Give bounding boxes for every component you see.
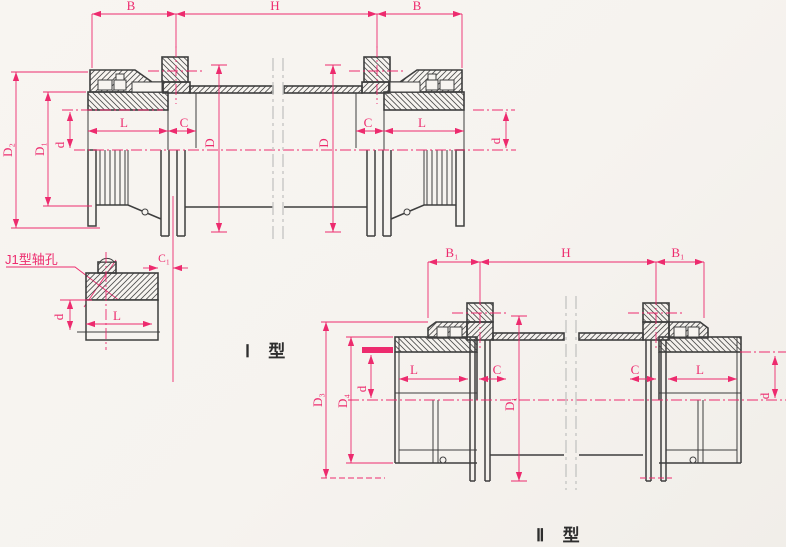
dim-label-D2: D₂ <box>0 143 15 157</box>
type1-title: Ⅰ 型 <box>245 341 292 361</box>
type1-external-lower-half <box>88 150 464 236</box>
type1-dimensions: B H B D₂ D₁ d L C D D C L d <box>0 0 506 382</box>
dim-label-C-left-2: C <box>493 362 502 377</box>
hub-rim-right <box>384 92 464 110</box>
dim-label-d-left-2: d <box>354 385 369 392</box>
hub-rim-right-2 <box>659 337 741 352</box>
scanned-coupling-drawing-page: B H B D₂ D₁ d L C D D C L d <box>0 0 786 547</box>
dim-label-D3: D₃ <box>310 393 325 407</box>
dim-label-C1: C₁ <box>158 253 170 265</box>
middle-tube-right <box>284 86 362 93</box>
dim-label-B1-left: B₁ <box>445 245 458 260</box>
lube-hole-right-2 <box>690 457 696 463</box>
type1-section-upper-half <box>88 57 464 150</box>
coupling-drawing-canvas: B H B D₂ D₁ d L C D D C L d <box>0 0 786 547</box>
dim-label-H: H <box>270 0 279 13</box>
hub-rim-left <box>88 92 168 110</box>
j1-boss-cap <box>100 258 114 262</box>
lube-hole-right <box>404 209 410 215</box>
type2-external-lower-half <box>395 400 741 463</box>
dim-label-D-left: D <box>202 138 217 147</box>
type1-shaft-hole-detail: J1型轴孔 C₁ d L <box>5 252 188 350</box>
dim-label-L-left-2: L <box>410 362 418 377</box>
dim-label-d-right-2: d <box>757 392 772 399</box>
type2-title: Ⅱ 型 <box>536 525 587 545</box>
highlight-marker-bar <box>362 347 393 353</box>
dim-label-D1-2: D₁ <box>502 397 517 411</box>
dim-label-L-left: L <box>120 115 128 130</box>
dim-label-H-2: H <box>561 245 570 260</box>
bolt-left <box>162 57 188 82</box>
type2-dimensions: B₁ H B₁ D₃ D₄ d L C D₁ C L d <box>310 245 775 481</box>
dim-label-B-left: B <box>127 0 136 13</box>
middle-tube-left <box>190 86 273 93</box>
dim-label-L-right-2: L <box>696 362 704 377</box>
middle-tube-right-2 <box>579 333 643 340</box>
hub-rim-left-2 <box>395 337 477 352</box>
middle-tube-left-2 <box>493 333 564 340</box>
dim-label-C-right: C <box>364 115 373 130</box>
j1-hub-rim <box>86 273 158 300</box>
dim-label-C-left: C <box>180 115 189 130</box>
dim-label-D-right: D <box>316 138 331 147</box>
seal-rings <box>98 74 454 92</box>
lube-hole-left-2 <box>440 457 446 463</box>
dim-label-B-right: B <box>413 0 422 13</box>
dim-label-hub-L: L <box>113 308 121 323</box>
type2-drawing: B₁ H B₁ D₃ D₄ d L C D₁ C L d Ⅱ 型 <box>310 245 786 545</box>
lube-hole-left <box>142 209 148 215</box>
dim-label-hub-d: d <box>51 313 66 320</box>
dim-label-B1-right: B₁ <box>671 245 684 260</box>
dim-label-D1: D₁ <box>32 142 47 156</box>
j1-boss <box>98 262 116 273</box>
dim-label-d-left: d <box>52 141 67 148</box>
dim-label-D4: D₄ <box>335 394 350 408</box>
dim-label-L-right: L <box>418 115 426 130</box>
dim-label-d-right: d <box>488 137 503 144</box>
j1-shaft-hole-callout: J1型轴孔 <box>5 252 58 267</box>
dim-label-C-right-2: C <box>631 362 640 377</box>
j1-hub-body <box>86 300 158 340</box>
type2-break-lines <box>566 296 576 490</box>
